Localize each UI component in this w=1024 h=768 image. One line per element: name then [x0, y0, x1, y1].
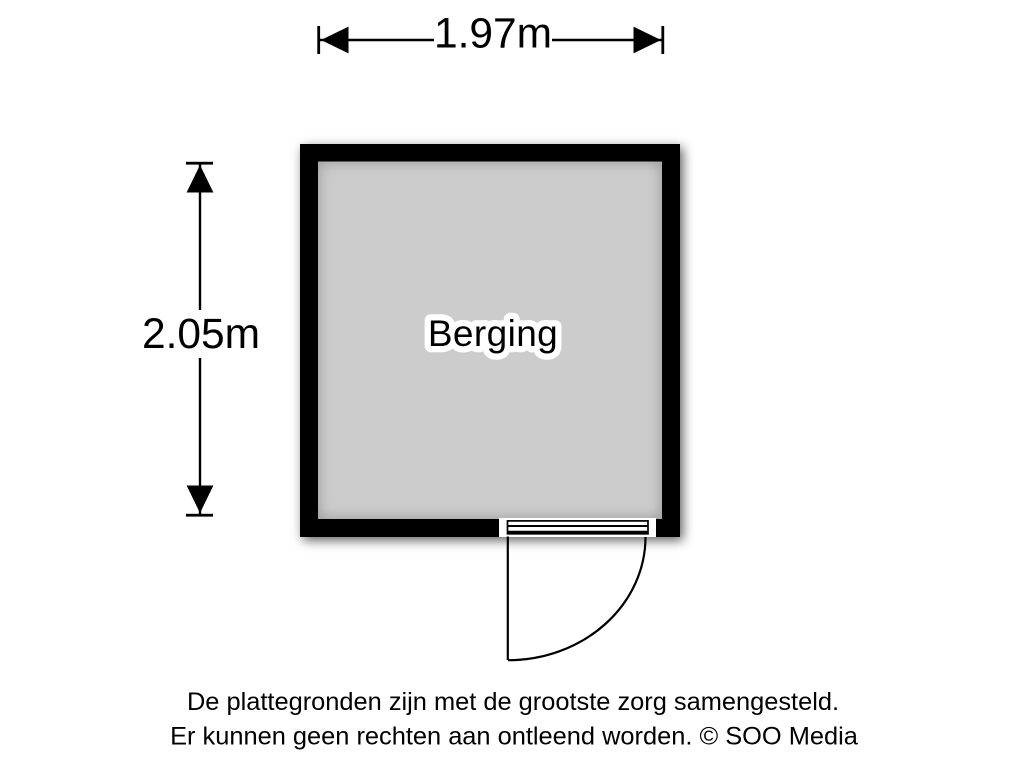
- svg-text:Berging: Berging: [428, 313, 558, 354]
- svg-text:Er kunnen geen rechten aan ont: Er kunnen geen rechten aan ontleend word…: [170, 723, 859, 751]
- svg-text:2.05m: 2.05m: [142, 311, 260, 358]
- svg-text:De plattegronden zijn met de g: De plattegronden zijn met de grootste zo…: [187, 688, 839, 716]
- svg-text:1.97m: 1.97m: [434, 11, 552, 58]
